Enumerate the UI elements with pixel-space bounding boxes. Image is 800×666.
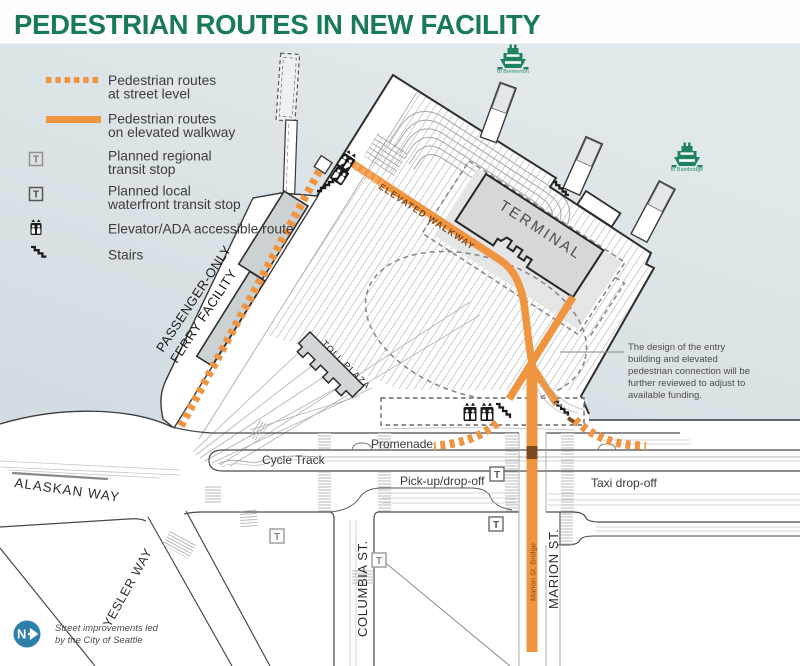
svg-text:T: T (33, 155, 39, 166)
svg-text:T: T (493, 520, 499, 531)
svg-text:N: N (17, 627, 26, 642)
svg-text:Promenade: Promenade (371, 437, 433, 451)
svg-text:COLUMBIA ST.: COLUMBIA ST. (355, 540, 370, 637)
svg-text:Cycle Track: Cycle Track (262, 453, 326, 467)
svg-text:building and elevated: building and elevated (628, 354, 718, 365)
svg-text:waterfront transit stop: waterfront transit stop (107, 197, 241, 212)
svg-text:on elevated walkway: on elevated walkway (108, 125, 235, 140)
svg-text:PEDESTRIAN ROUTES IN NEW FACIL: PEDESTRIAN ROUTES IN NEW FACILITY (14, 9, 540, 40)
svg-text:to Bremerton: to Bremerton (497, 69, 529, 75)
svg-text:T: T (376, 556, 382, 567)
svg-text:by the City of Seattle: by the City of Seattle (55, 635, 143, 646)
svg-text:Marion St. Bridge: Marion St. Bridge (529, 543, 538, 601)
svg-text:The design of the entry: The design of the entry (628, 342, 725, 353)
svg-text:Street improvements led: Street improvements led (55, 623, 159, 634)
svg-text:Pick-up/drop-off: Pick-up/drop-off (400, 474, 485, 488)
svg-text:Elevator/ADA accessible route: Elevator/ADA accessible route (108, 222, 294, 237)
svg-text:further reviewed to adjust to: further reviewed to adjust to (628, 378, 745, 389)
svg-text:T: T (274, 532, 280, 543)
svg-text:MARION ST.: MARION ST. (546, 529, 561, 609)
svg-text:at street level: at street level (108, 87, 190, 102)
svg-text:T: T (494, 470, 500, 481)
svg-text:transit stop: transit stop (108, 162, 176, 177)
svg-text:T: T (33, 190, 39, 201)
svg-text:to Bainbridge: to Bainbridge (671, 167, 703, 173)
svg-text:available funding.: available funding. (628, 390, 702, 401)
svg-text:pedestrian connection will be: pedestrian connection will be (628, 366, 750, 377)
svg-text:Taxi drop-off: Taxi drop-off (591, 476, 657, 490)
svg-text:Stairs: Stairs (108, 248, 143, 263)
